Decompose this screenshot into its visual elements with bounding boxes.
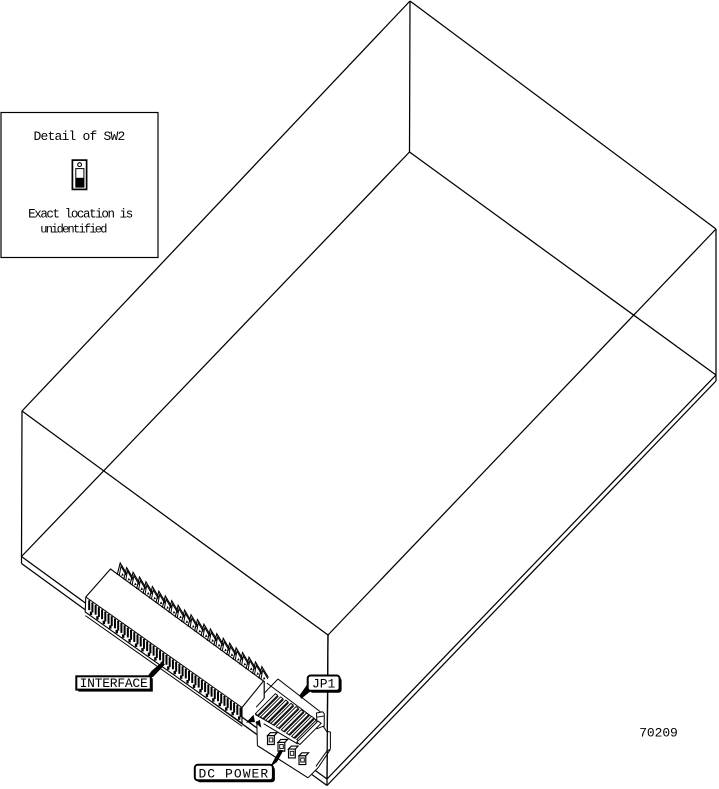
svg-text:JP1: JP1 (312, 676, 336, 691)
svg-text:DC POWER: DC POWER (198, 767, 269, 782)
svg-text:70209: 70209 (639, 726, 678, 741)
svg-text:INTERFACE: INTERFACE (80, 676, 148, 691)
svg-text:Exact location is: Exact location is (28, 207, 133, 221)
svg-text:Detail of SW2: Detail of SW2 (33, 129, 124, 144)
svg-text:unidentified: unidentified (40, 223, 107, 237)
